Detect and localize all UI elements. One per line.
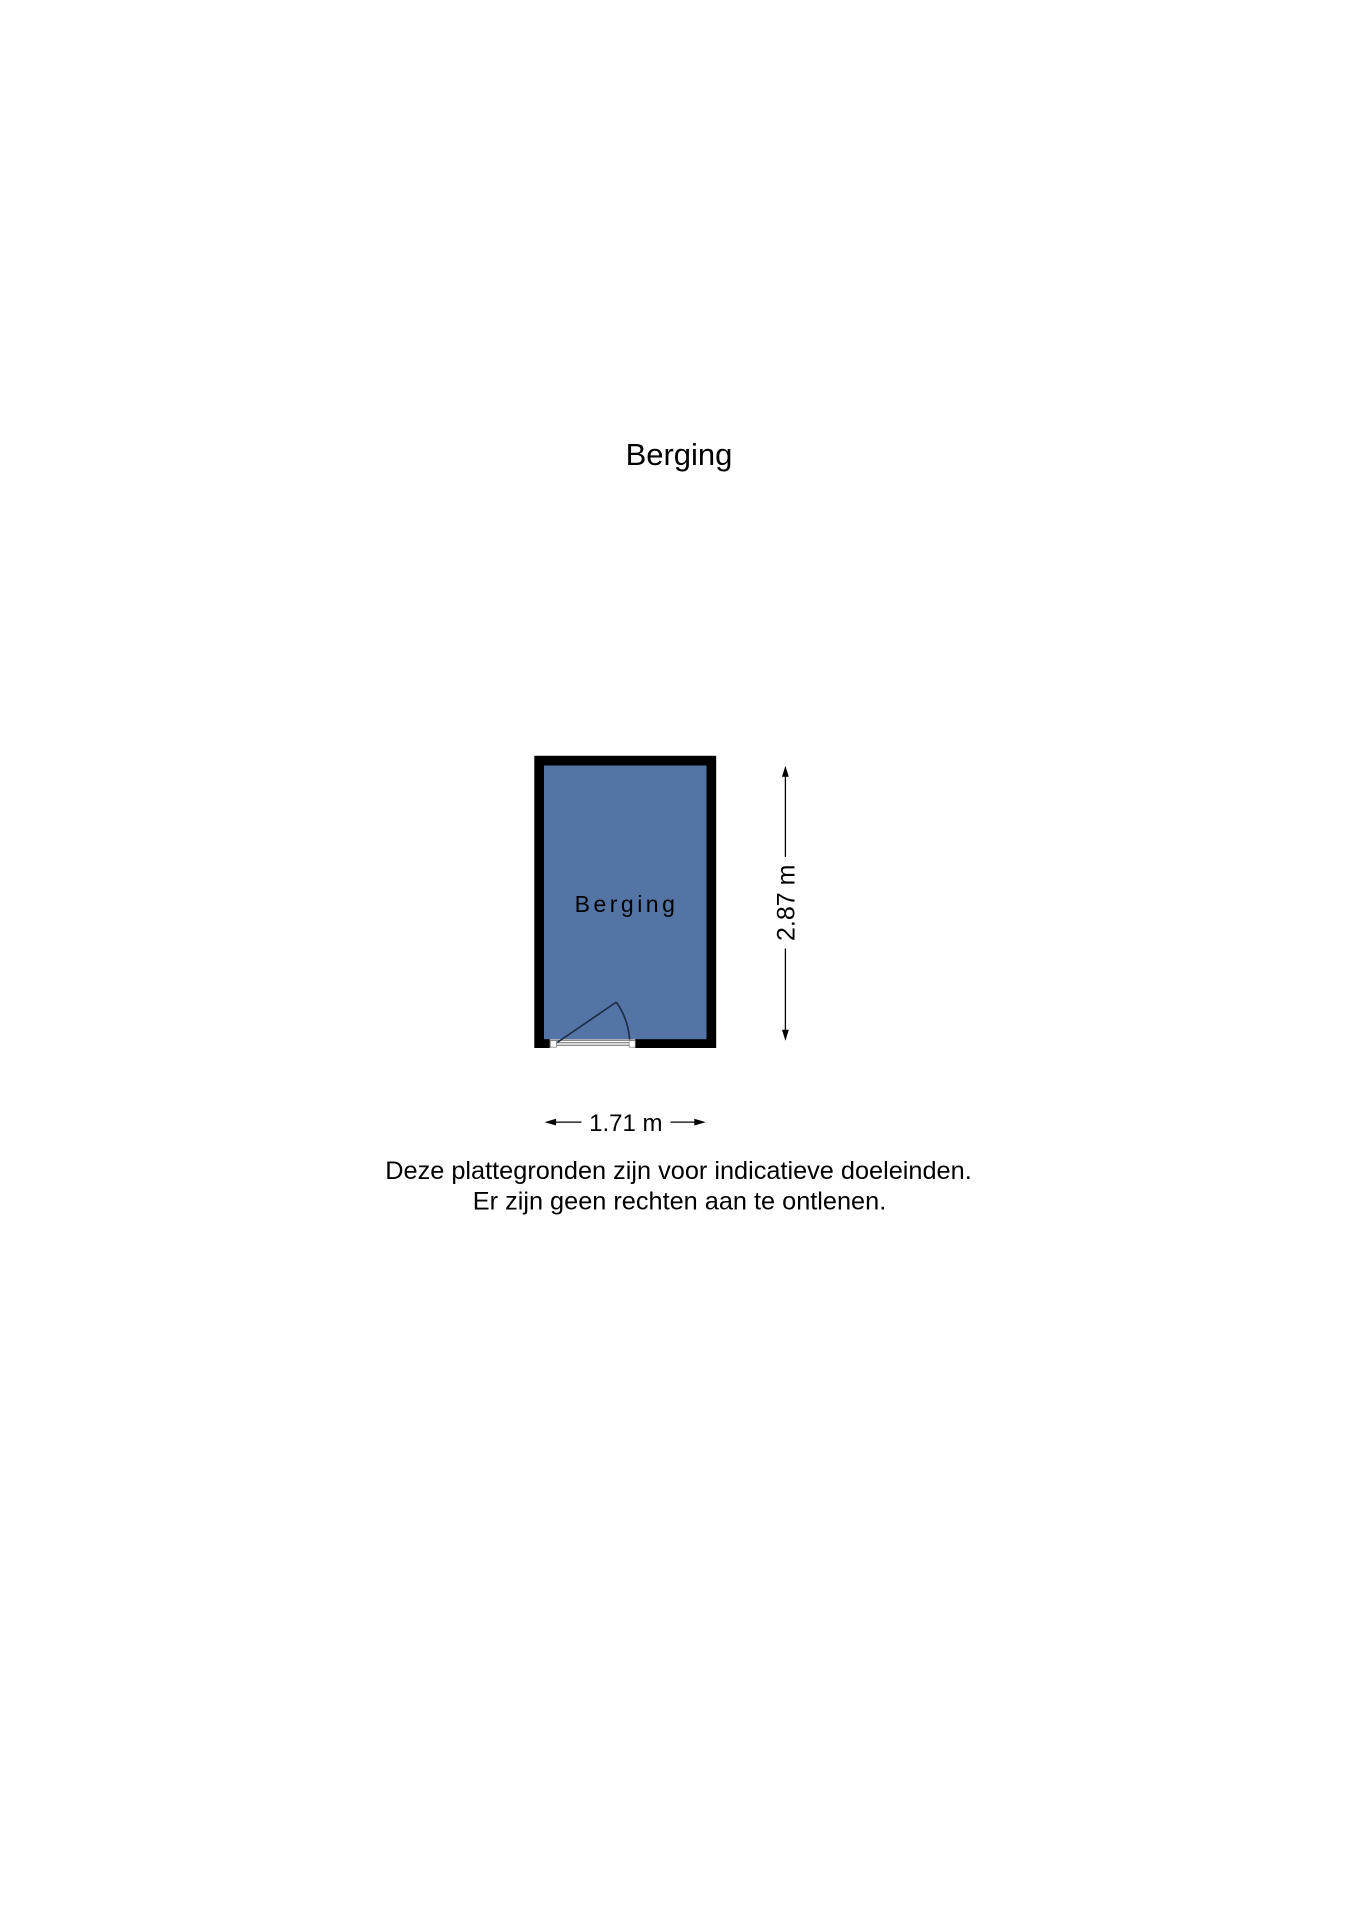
svg-text:Deze plattegronden zijn voor i: Deze plattegronden zijn voor indicatieve… [385, 1157, 971, 1185]
svg-text:1.71 m: 1.71 m [589, 1110, 662, 1137]
svg-text:Berging: Berging [626, 437, 733, 472]
svg-text:2.87 m: 2.87 m [773, 865, 801, 941]
svg-text:Er zijn geen rechten aan te on: Er zijn geen rechten aan te ontlenen. [473, 1188, 886, 1216]
svg-text:Berging: Berging [575, 891, 679, 917]
